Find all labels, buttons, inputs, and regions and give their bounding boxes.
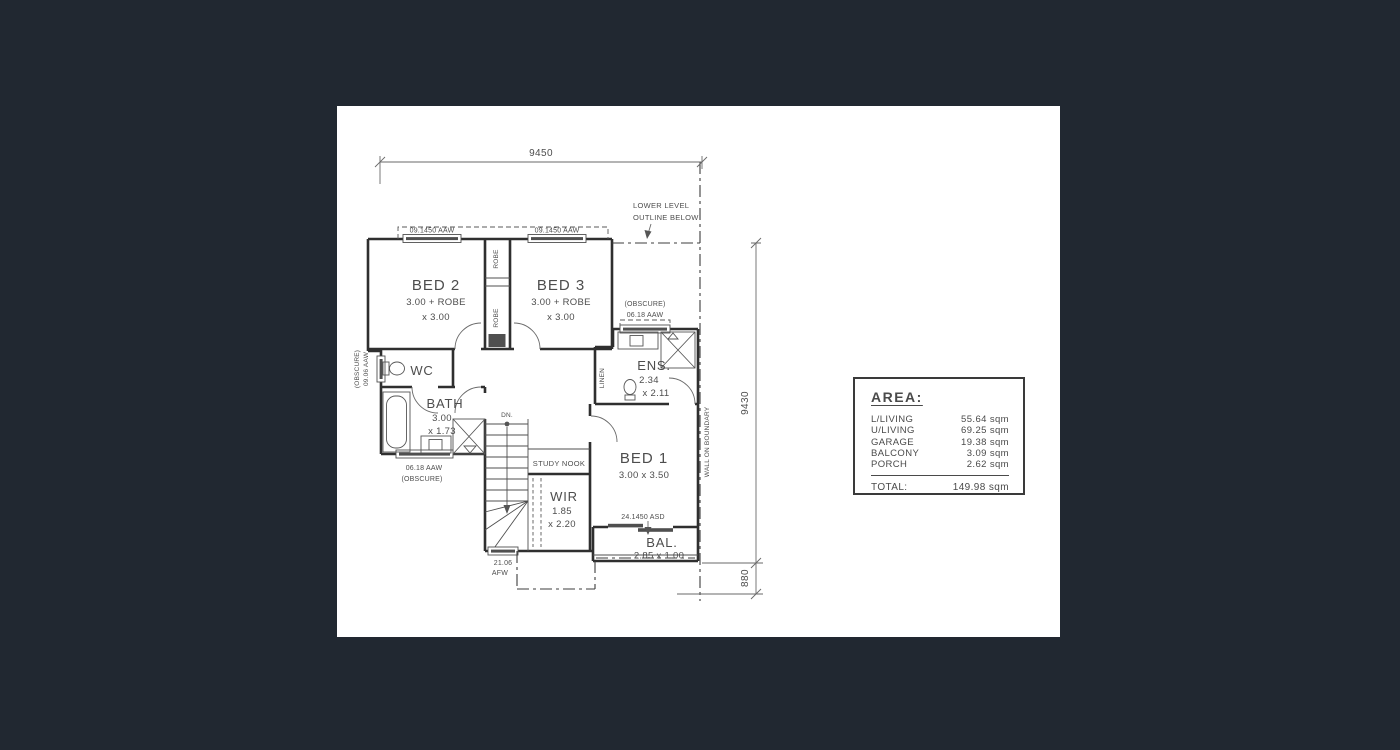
area-table-total-row: TOTAL: 149.98 sqm: [871, 475, 1009, 493]
area-row-label: BALCONY: [871, 448, 919, 459]
floorplan-drawing: 9450 9430 880 WALL ON BOUNDARY LOWER LEV…: [337, 106, 1060, 637]
area-row-label: L/LIVING: [871, 414, 913, 425]
window-label-wc-obscure: (OBSCURE): [354, 350, 361, 388]
window-label-bath: 06.18 AAW: [406, 465, 443, 472]
area-row-label: U/LIVING: [871, 425, 915, 436]
window-wc-side: [377, 356, 385, 382]
table-row: GARAGE 19.38 sqm: [871, 437, 1009, 448]
room-label-wir: WIR: [550, 489, 578, 504]
room-dim-wir-2: x 2.20: [548, 519, 576, 530]
room-label-bed1: BED 1: [620, 450, 668, 467]
room-label-linen: LINEN: [599, 368, 606, 388]
room-ens: ENS. 2.34 x 2.11: [637, 358, 671, 399]
window-label-ens: 06.18 AAW: [627, 312, 664, 319]
area-schedule-table: AREA: L/LIVING 55.64 sqm U/LIVING 69.25 …: [853, 377, 1025, 495]
robe-shelf: [489, 334, 506, 347]
sliding-door-balcony: [608, 524, 673, 532]
bathtub: [383, 392, 410, 452]
wc-toilet: [383, 362, 405, 375]
annotation-arrowhead: [645, 230, 652, 239]
floorplan-sheet: 9450 9430 880 WALL ON BOUNDARY LOWER LEV…: [337, 106, 1060, 637]
lower-level-annotation: LOWER LEVEL OUTLINE BELOW: [633, 201, 699, 239]
room-label-ens: ENS.: [637, 358, 671, 373]
room-bed2: BED 2 3.00 + ROBE x 3.00: [406, 277, 466, 323]
stair-down-label: DN.: [501, 412, 513, 419]
window-label-top-right: 09.1450 AAW: [535, 228, 580, 235]
app-background: { "plan": { "dims": { "width": "9450", "…: [0, 0, 1400, 750]
dim-height-label: 9430: [740, 391, 751, 415]
room-label-bath: BATH: [427, 396, 464, 411]
room-label-bed2: BED 2: [412, 277, 460, 294]
window-top-left: [403, 235, 461, 243]
window-label-ens-obscure: (OBSCURE): [624, 301, 665, 308]
dim-porch-label: 880: [740, 569, 751, 587]
room-dim-bath-1: 3.00: [432, 413, 452, 424]
table-row: L/LIVING 55.64 sqm: [871, 414, 1009, 425]
lower-level-line1: LOWER LEVEL: [633, 201, 689, 210]
ens-vanity: [618, 332, 658, 349]
ens-toilet: [624, 380, 636, 401]
room-label-robe-lower: ROBE: [493, 308, 500, 328]
room-bath: BATH 3.00 x 1.73: [427, 396, 464, 437]
window-label-bath-obscure: (OBSCURE): [401, 476, 442, 483]
room-dim-balcony: 2.85 x 1.00: [634, 551, 684, 562]
room-dim-ens-1: 2.34: [639, 375, 659, 386]
wir-void-dashed: [533, 478, 541, 547]
room-label-robe-upper: ROBE: [493, 249, 500, 269]
area-total-label: TOTAL:: [871, 482, 907, 493]
window-top-right: [528, 235, 586, 243]
room-label-study-nook: STUDY NOOK: [533, 459, 585, 468]
area-row-label: GARAGE: [871, 437, 914, 448]
lower-level-line2: OUTLINE BELOW: [633, 213, 699, 222]
room-dim-bath-2: x 1.73: [428, 426, 456, 437]
stair-down-arrowhead: [504, 505, 511, 514]
room-wir: WIR 1.85 x 2.20: [548, 489, 578, 530]
room-dim-bed1: 3.00 x 3.50: [619, 470, 669, 481]
door-label-balcony: 24.1450 ASD: [621, 514, 664, 521]
table-row: U/LIVING 69.25 sqm: [871, 425, 1009, 436]
dimension-top: 9450: [375, 148, 707, 184]
area-table-rows: L/LIVING 55.64 sqm U/LIVING 69.25 sqm GA…: [871, 414, 1009, 470]
room-dim-bed3-1: 3.00 + ROBE: [531, 297, 591, 308]
room-dim-bed2-2: x 3.00: [422, 312, 450, 323]
area-row-value: 3.09 sqm: [967, 448, 1009, 459]
bath-shower: [453, 419, 485, 454]
area-row-value: 19.38 sqm: [961, 437, 1009, 448]
room-dim-ens-2: x 2.11: [643, 388, 670, 399]
window-label-top-left: 09.1450 AAW: [410, 228, 455, 235]
area-total-value: 149.98 sqm: [953, 482, 1009, 493]
dim-width-label: 9450: [529, 148, 553, 159]
room-bed1: BED 1 3.00 x 3.50: [619, 450, 669, 481]
minor-partition-lines: [485, 278, 698, 555]
table-row: BALCONY 3.09 sqm: [871, 448, 1009, 459]
room-bed3: BED 3 3.00 + ROBE x 3.00: [531, 277, 591, 323]
window-label-wc: 09.06 AAW: [363, 351, 370, 386]
staircase: [485, 422, 528, 551]
area-row-value: 69.25 sqm: [961, 425, 1009, 436]
area-table-title: AREA:: [871, 389, 1023, 405]
room-dim-bed2-1: 3.00 + ROBE: [406, 297, 466, 308]
room-dim-wir-1: 1.85: [552, 506, 572, 517]
window-bath: [396, 450, 453, 458]
area-row-value: 55.64 sqm: [961, 414, 1009, 425]
dimension-right: 9430 880: [677, 238, 763, 599]
room-balcony: BAL. 2.85 x 1.00: [634, 535, 684, 562]
table-row: PORCH 2.62 sqm: [871, 459, 1009, 470]
room-label-wc: WC: [410, 363, 433, 378]
wall-on-boundary-label: WALL ON BOUNDARY: [704, 406, 711, 477]
room-label-bed3: BED 3: [537, 277, 585, 294]
room-label-balcony: BAL.: [646, 535, 677, 550]
stair-post: [505, 422, 510, 427]
window-stair: [488, 547, 518, 555]
area-row-label: PORCH: [871, 459, 907, 470]
room-dim-bed3-2: x 3.00: [547, 312, 575, 323]
window-label-stair-size: 21.06: [494, 560, 513, 567]
window-label-stair-type: AFW: [492, 570, 508, 577]
area-row-value: 2.62 sqm: [967, 459, 1009, 470]
